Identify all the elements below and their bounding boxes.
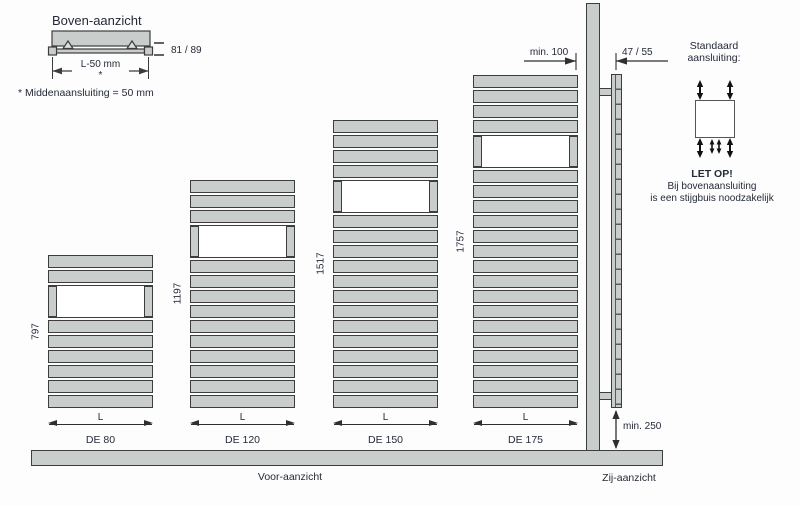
warning-line1: Bij bovenaansluiting — [650, 181, 774, 192]
top-view-width-dim-star: * — [52, 70, 149, 82]
towel-opening-rail-right — [429, 181, 438, 212]
radiator-slat — [48, 380, 153, 393]
radiator-slat — [190, 320, 295, 333]
radiator-height-label: 1517 — [316, 234, 327, 294]
radiator-slat — [190, 395, 295, 408]
radiator-slat — [190, 210, 295, 223]
wall-bracket-bottom — [599, 392, 612, 400]
towel-opening-rail-right — [569, 136, 578, 167]
radiator-slat — [48, 365, 153, 378]
radiator-slat — [473, 200, 578, 213]
warning-line2: is een stijgbuis noodzakelijk — [640, 193, 784, 204]
side-view-radiator — [611, 74, 622, 408]
radiator-slat — [48, 335, 153, 348]
radiator-slat — [473, 395, 578, 408]
towel-opening — [48, 285, 153, 318]
radiator-slat — [473, 170, 578, 183]
radiator-slat — [333, 350, 438, 363]
radiator-spec-diagram: Boven-aanzicht — [0, 0, 800, 506]
side-depth-label: 47 / 55 — [622, 47, 653, 59]
radiator-slat — [473, 350, 578, 363]
width-dimension-arrow — [474, 424, 577, 425]
towel-opening — [473, 135, 578, 168]
wall — [586, 3, 600, 451]
front-view-label: Voor-aanzicht — [240, 471, 340, 483]
radiator-model-label: DE 80 — [48, 434, 153, 446]
radiator-slat — [190, 180, 295, 193]
radiator-slat — [190, 290, 295, 303]
width-dimension-label: L — [333, 412, 438, 423]
towel-opening-rail-left — [190, 226, 199, 257]
radiator-slat — [333, 230, 438, 243]
width-dimension-arrow — [191, 424, 294, 425]
connection-box — [695, 100, 735, 138]
radiator-slat — [190, 305, 295, 318]
radiator-slat — [333, 150, 438, 163]
radiator-slat — [190, 275, 295, 288]
width-dimension-label: L — [48, 412, 153, 423]
dim-min-250 — [612, 410, 619, 449]
radiator-slat — [333, 135, 438, 148]
radiator-slat — [48, 255, 153, 268]
radiator-de-175: 1757LDE 175 — [473, 75, 578, 408]
radiator-slat — [333, 245, 438, 258]
top-view-depth-dim-label: 81 / 89 — [171, 45, 202, 57]
radiator-slat — [473, 215, 578, 228]
width-dimension-arrow — [49, 424, 152, 425]
radiator-slat — [48, 270, 153, 283]
radiator-height-label: 797 — [31, 301, 42, 361]
radiator-slat — [333, 120, 438, 133]
warning-title: LET OP! — [650, 168, 774, 180]
towel-opening-rail-right — [286, 226, 295, 257]
radiator-de-120: 1197LDE 120 — [190, 180, 295, 408]
radiator-slat — [190, 380, 295, 393]
radiator-slat — [473, 275, 578, 288]
width-dimension-label: L — [190, 412, 295, 423]
radiator-slat — [473, 305, 578, 318]
radiator-slat — [48, 320, 153, 333]
top-view-title: Boven-aanzicht — [52, 13, 142, 28]
radiator-slat — [473, 335, 578, 348]
radiator-slat — [473, 120, 578, 133]
radiator-slat — [190, 335, 295, 348]
connection-title-line1: Standaard — [672, 40, 756, 52]
radiator-slat — [48, 395, 153, 408]
side-view-slat-ticks — [615, 75, 621, 407]
radiator-slat — [473, 75, 578, 88]
radiator-de-80: 797LDE 80 — [48, 255, 153, 408]
radiator-slat — [333, 305, 438, 318]
radiator-slat — [473, 320, 578, 333]
connection-title-line2: aansluiting: — [672, 52, 756, 64]
radiator-slat — [473, 245, 578, 258]
towel-opening-rail-left — [473, 136, 482, 167]
radiator-model-label: DE 150 — [333, 434, 438, 446]
radiator-slat — [333, 215, 438, 228]
radiator-slat — [473, 105, 578, 118]
radiator-slat — [333, 260, 438, 273]
wall-clearance-label: min. 100 — [520, 47, 578, 59]
radiator-slat — [473, 260, 578, 273]
side-view-label: Zij-aanzicht — [589, 472, 669, 484]
radiator-slat — [48, 350, 153, 363]
radiator-slat — [333, 275, 438, 288]
radiator-slat — [333, 320, 438, 333]
radiator-slat — [473, 380, 578, 393]
radiator-slat — [190, 365, 295, 378]
towel-opening-rail-left — [48, 286, 57, 317]
radiator-de-150: 1517LDE 150 — [333, 120, 438, 408]
radiator-slat — [190, 350, 295, 363]
radiator-slat — [473, 365, 578, 378]
radiator-slat — [333, 165, 438, 178]
towel-opening — [333, 180, 438, 213]
radiator-slat — [473, 185, 578, 198]
radiator-height-label: 1197 — [173, 264, 184, 324]
radiator-slat — [190, 195, 295, 208]
radiator-slat — [473, 230, 578, 243]
floor — [31, 450, 663, 466]
radiator-model-label: DE 120 — [190, 434, 295, 446]
radiator-slat — [333, 290, 438, 303]
width-dimension-arrow — [334, 424, 437, 425]
radiator-slat — [333, 395, 438, 408]
towel-opening-rail-left — [333, 181, 342, 212]
radiator-slat — [190, 260, 295, 273]
radiator-slat — [473, 290, 578, 303]
connection-title: Standaard aansluiting: — [672, 40, 756, 64]
towel-opening — [190, 225, 295, 258]
radiator-slat — [473, 90, 578, 103]
towel-opening-rail-right — [144, 286, 153, 317]
wall-bracket-top — [599, 88, 612, 96]
floor-clearance-label: min. 250 — [623, 421, 661, 433]
radiator-slat — [333, 380, 438, 393]
top-view-note: * Middenaansluiting = 50 mm — [18, 87, 154, 99]
radiator-slat — [333, 365, 438, 378]
radiator-model-label: DE 175 — [473, 434, 578, 446]
width-dimension-label: L — [473, 412, 578, 423]
radiator-height-label: 1757 — [456, 211, 467, 271]
radiator-slat — [333, 335, 438, 348]
